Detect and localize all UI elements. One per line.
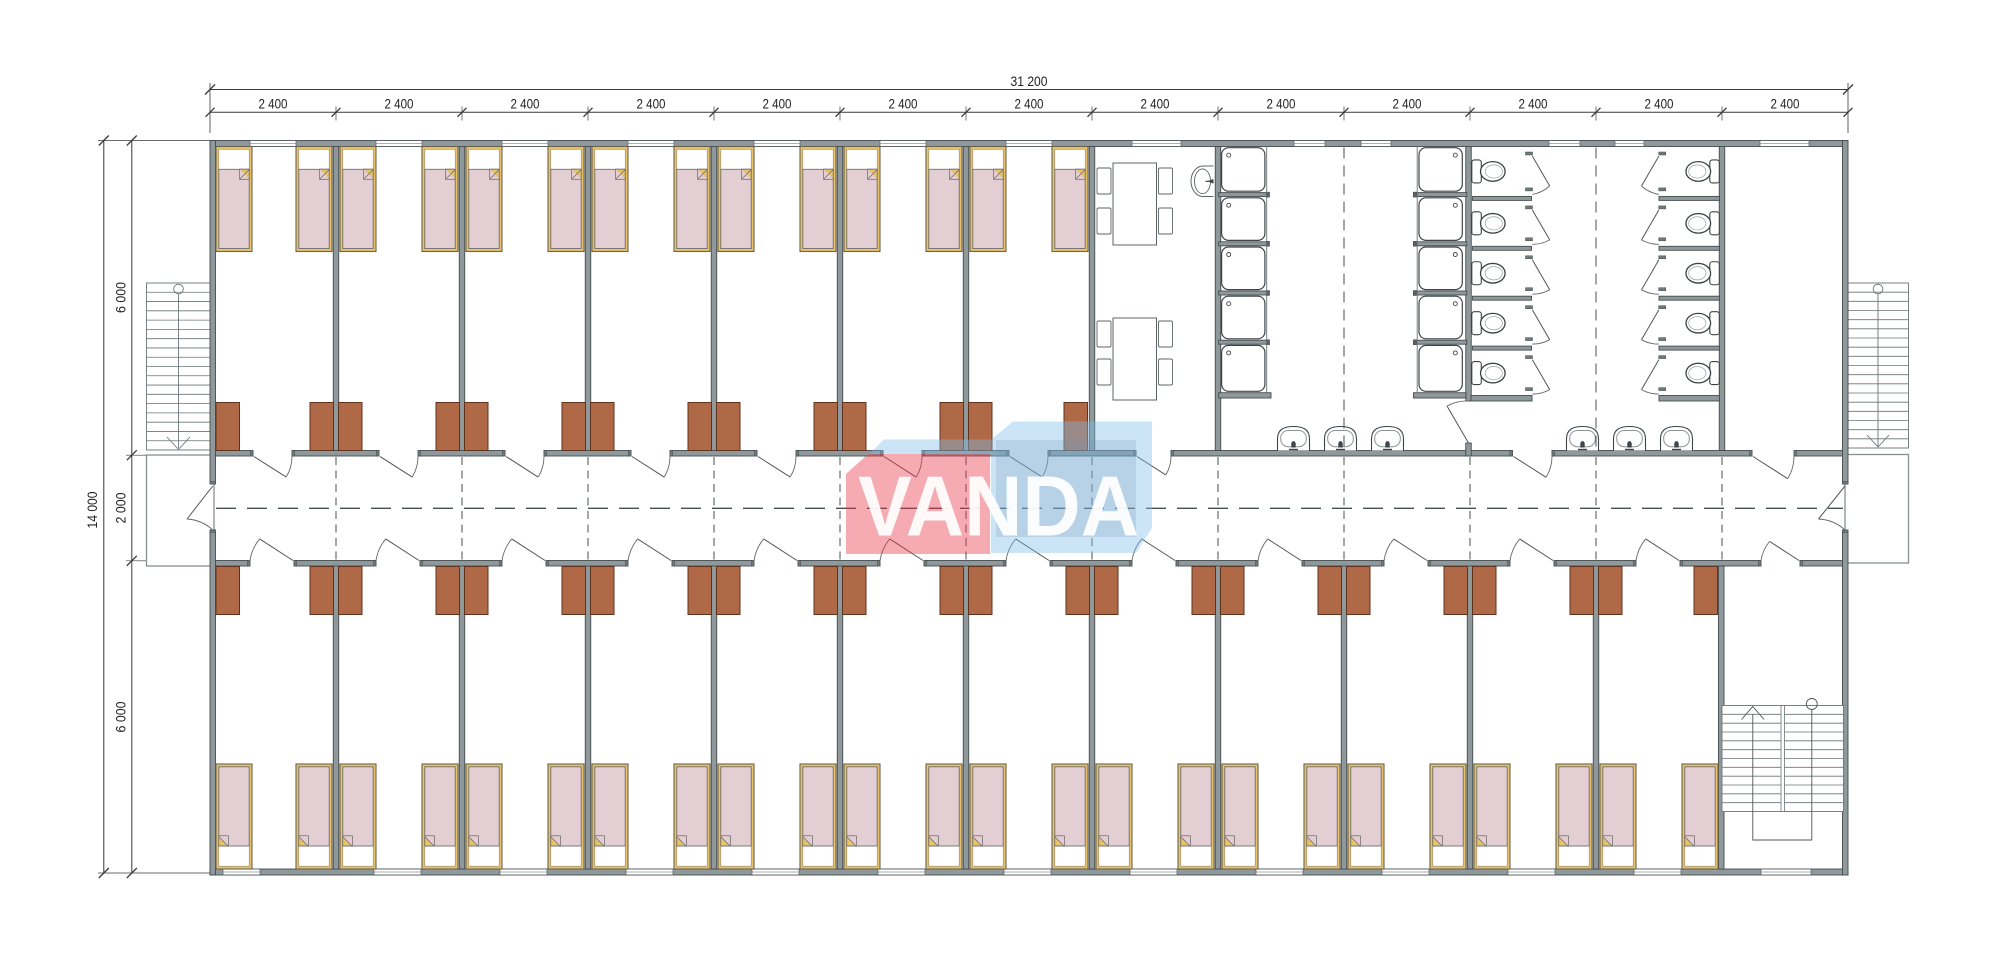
svg-text:2 400: 2 400 — [1519, 97, 1548, 112]
svg-text:2 400: 2 400 — [511, 97, 540, 112]
svg-text:VANDA: VANDA — [858, 459, 1139, 554]
svg-text:6 000: 6 000 — [114, 282, 129, 313]
svg-text:2 400: 2 400 — [889, 97, 918, 112]
svg-text:2 400: 2 400 — [259, 97, 288, 112]
svg-text:2 400: 2 400 — [1393, 97, 1422, 112]
svg-text:2 400: 2 400 — [1645, 97, 1674, 112]
svg-text:31 200: 31 200 — [1011, 74, 1048, 89]
svg-text:6 000: 6 000 — [114, 702, 129, 733]
svg-text:2 400: 2 400 — [637, 97, 666, 112]
svg-text:14 000: 14 000 — [85, 492, 100, 529]
svg-text:2 400: 2 400 — [1141, 97, 1170, 112]
svg-text:2 400: 2 400 — [1771, 97, 1800, 112]
svg-text:2 000: 2 000 — [114, 493, 129, 524]
svg-text:2 400: 2 400 — [1267, 97, 1296, 112]
svg-text:2 400: 2 400 — [385, 97, 414, 112]
svg-text:2 400: 2 400 — [763, 97, 792, 112]
svg-text:2 400: 2 400 — [1015, 97, 1044, 112]
